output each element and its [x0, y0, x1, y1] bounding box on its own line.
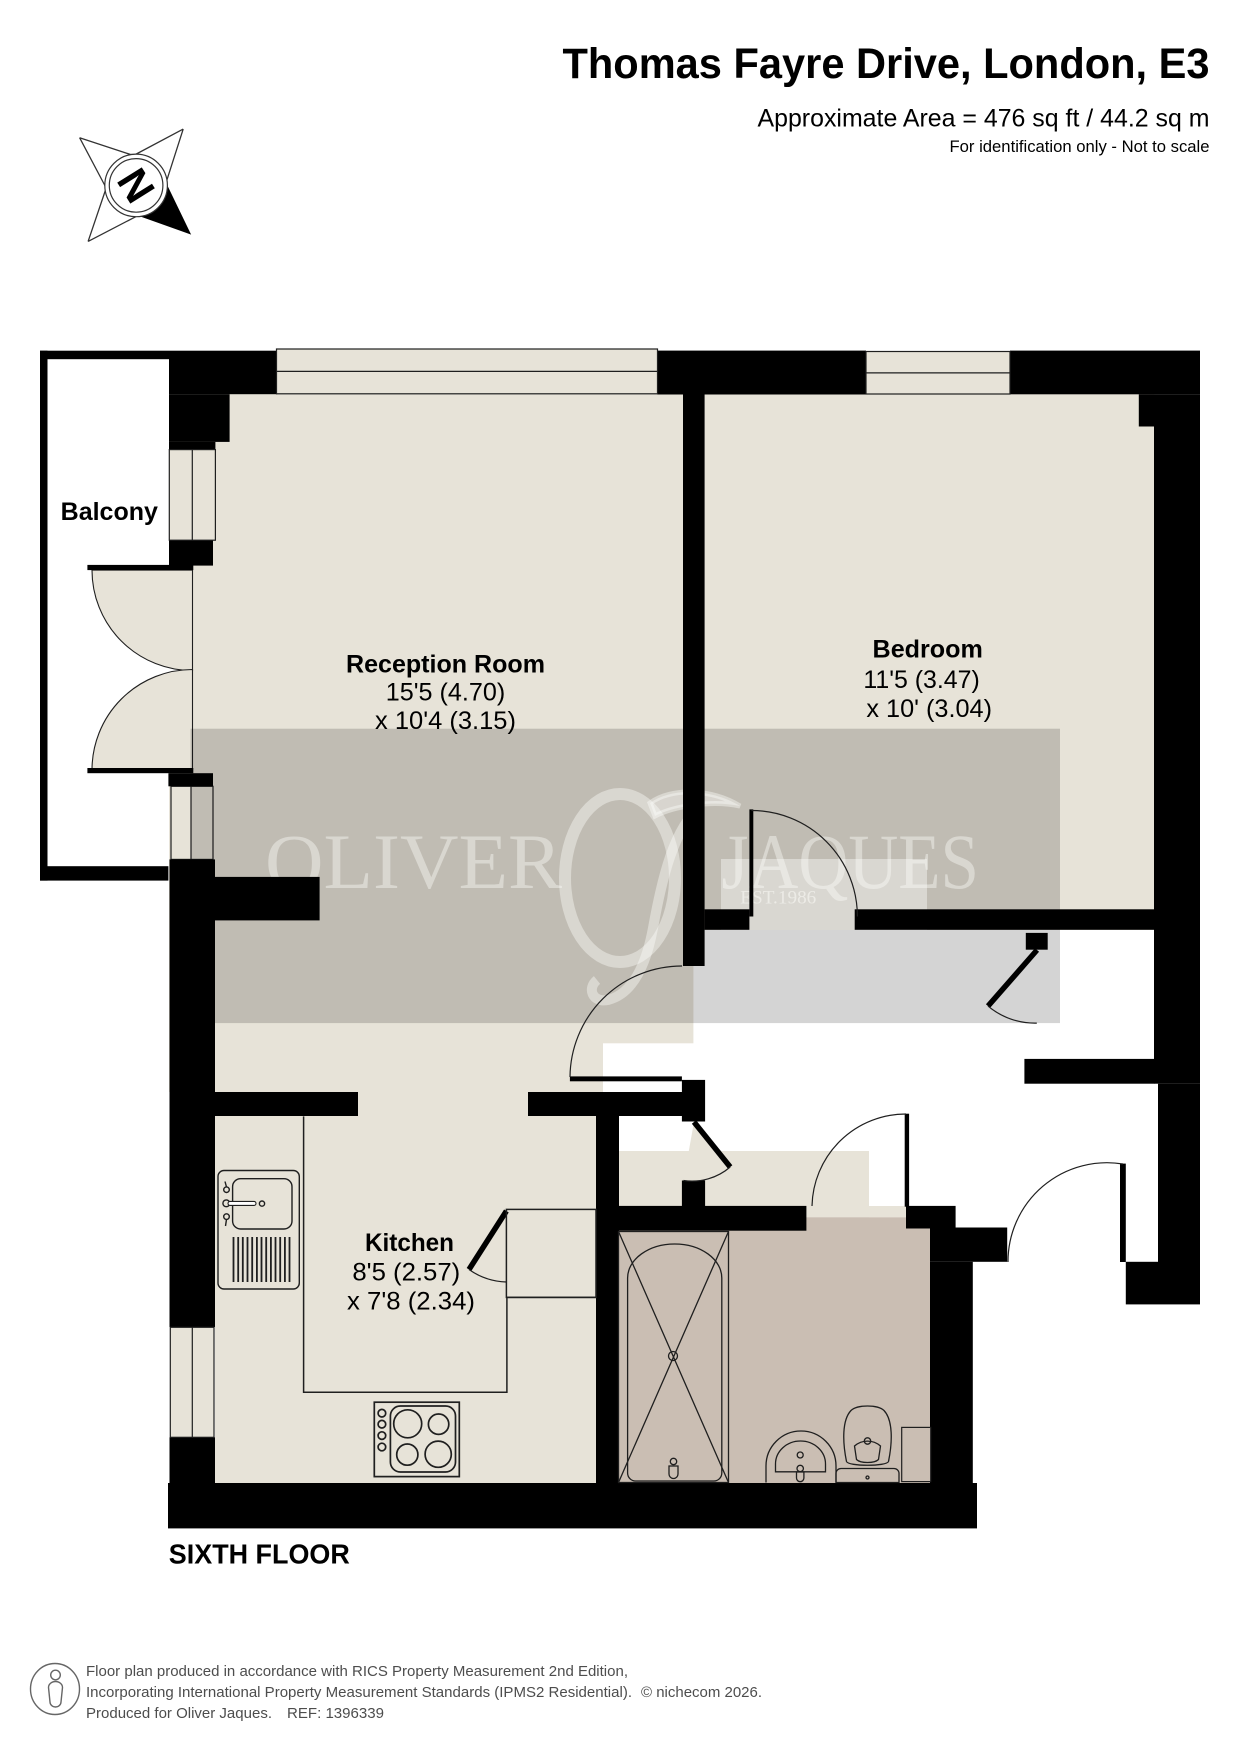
svg-text:x 10' (3.04): x 10' (3.04)	[866, 695, 992, 723]
svg-text:x 10'4 (3.15): x 10'4 (3.15)	[375, 707, 516, 735]
svg-text:SIXTH FLOOR: SIXTH FLOOR	[169, 1538, 350, 1569]
svg-text:Floor plan produced in accorda: Floor plan produced in accordance with R…	[86, 1663, 628, 1680]
svg-text:x 7'8 (2.34): x 7'8 (2.34)	[347, 1288, 475, 1316]
svg-text:REF: 1396339: REF: 1396339	[287, 1705, 384, 1722]
svg-text:Bedroom: Bedroom	[873, 636, 983, 664]
svg-text:8'5 (2.57): 8'5 (2.57)	[352, 1259, 460, 1287]
svg-text:Produced for Oliver Jaques.: Produced for Oliver Jaques.	[86, 1705, 272, 1722]
svg-text:Balcony: Balcony	[61, 498, 158, 526]
svg-text:Thomas Fayre Drive, London, E3: Thomas Fayre Drive, London, E3	[563, 41, 1210, 88]
svg-text:© nichecom 2026.: © nichecom 2026.	[641, 1684, 762, 1701]
svg-text:Incorporating International Pr: Incorporating International Property Mea…	[86, 1684, 632, 1701]
svg-text:15'5 (4.70): 15'5 (4.70)	[386, 679, 505, 707]
svg-text:Approximate Area = 476 sq ft /: Approximate Area = 476 sq ft / 44.2 sq m	[758, 105, 1210, 133]
svg-text:For identification only - Not: For identification only - Not to scale	[950, 137, 1210, 156]
svg-text:Kitchen: Kitchen	[365, 1229, 454, 1257]
svg-text:Reception Room: Reception Room	[346, 651, 545, 679]
svg-text:11'5 (3.47): 11'5 (3.47)	[863, 666, 979, 694]
